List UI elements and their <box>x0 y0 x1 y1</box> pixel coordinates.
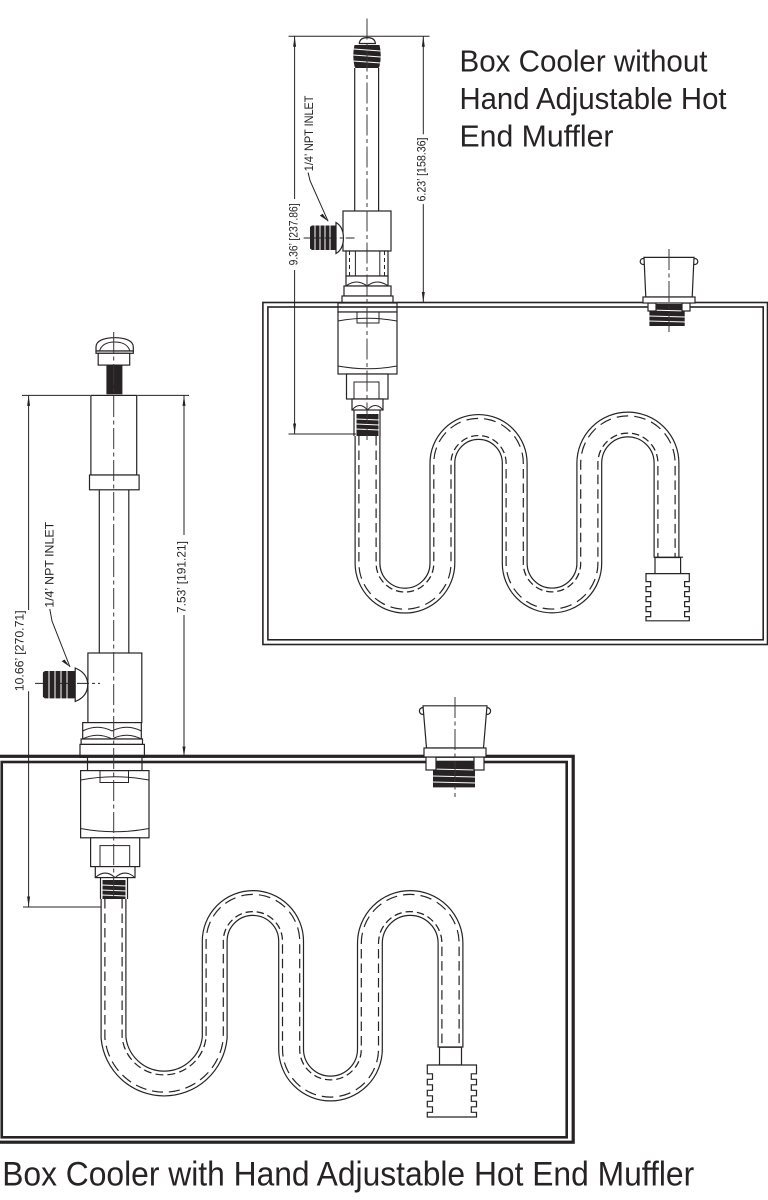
svg-text:10.66’ [270.71]: 10.66’ [270.71] <box>13 610 27 691</box>
svg-text:6.23’ [158.36]: 6.23’ [158.36] <box>415 138 429 202</box>
svg-text:7.53’ [191.21]: 7.53’ [191.21] <box>174 541 188 613</box>
svg-text:Hand Adjustable Hot: Hand Adjustable Hot <box>460 81 727 116</box>
svg-text:End Muffler: End Muffler <box>460 119 614 154</box>
svg-text:9.36’ [237.86]: 9.36’ [237.86] <box>286 203 300 265</box>
svg-text:Box Cooler with Hand Adjustabl: Box Cooler with Hand Adjustable Hot End … <box>2 1156 694 1194</box>
svg-text:Box Cooler without: Box Cooler without <box>460 44 708 79</box>
svg-text:1/4’ NPT INLET: 1/4’ NPT INLET <box>302 95 316 171</box>
svg-text:1/4’ NPT INLET: 1/4’ NPT INLET <box>43 521 57 608</box>
